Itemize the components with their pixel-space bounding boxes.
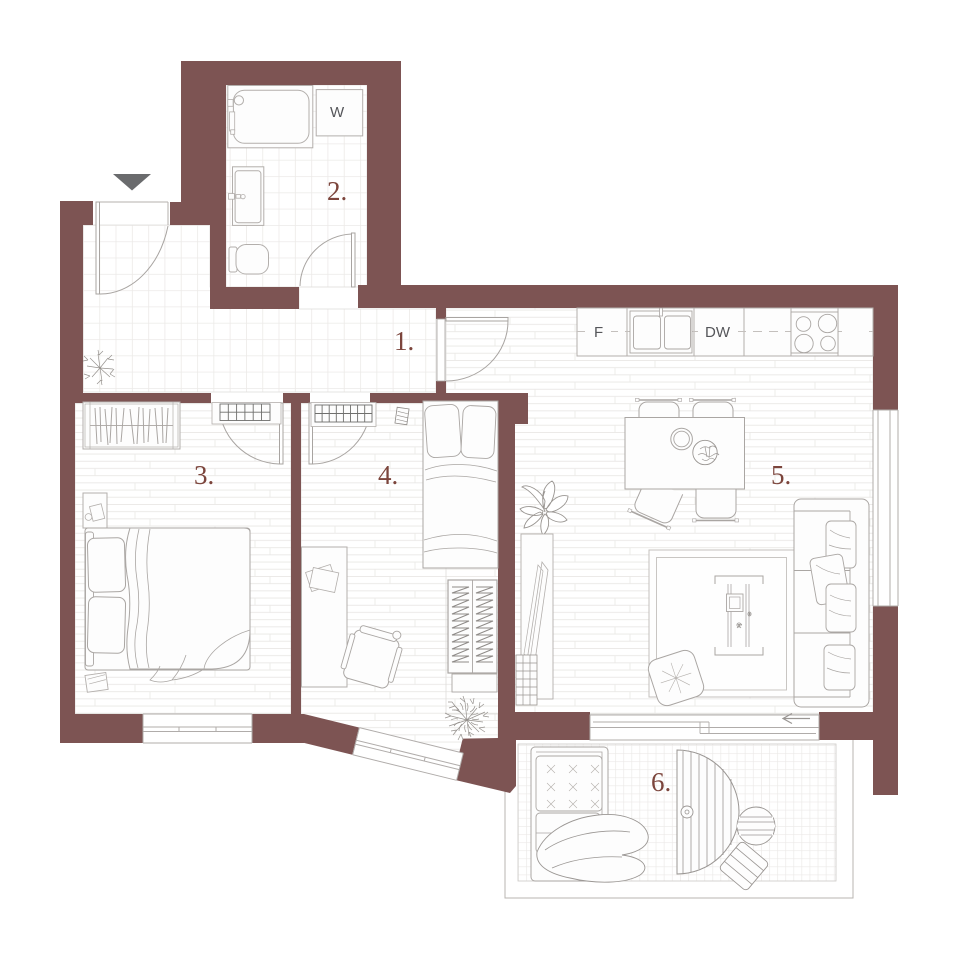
svg-text:2.: 2. bbox=[327, 176, 347, 206]
svg-text:6.: 6. bbox=[651, 767, 671, 797]
svg-text:1.: 1. bbox=[394, 326, 414, 356]
svg-text:F: F bbox=[594, 324, 603, 341]
svg-text:DW: DW bbox=[705, 324, 731, 341]
svg-text:W: W bbox=[330, 104, 345, 121]
svg-text:4.: 4. bbox=[378, 460, 398, 490]
svg-text:5.: 5. bbox=[771, 460, 791, 490]
svg-text:3.: 3. bbox=[194, 460, 214, 490]
